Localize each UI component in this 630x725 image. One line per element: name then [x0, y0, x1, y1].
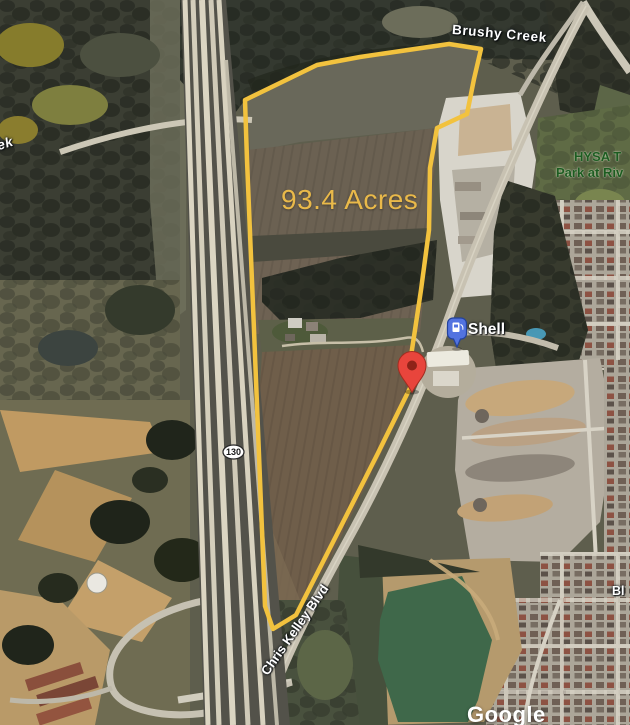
park-label-line2: Park at Riv — [556, 165, 623, 180]
satellite-map-canvas[interactable]: ek Brushy Creek 93.4 Acres HYSA T Park a… — [0, 0, 630, 725]
map-imagery — [0, 0, 630, 725]
highway-shield-number: 130 — [223, 446, 244, 458]
parcel-acreage-label: 93.4 Acres — [281, 184, 418, 216]
google-watermark: Google — [467, 702, 546, 725]
park-label-line1: HYSA T — [574, 149, 621, 164]
